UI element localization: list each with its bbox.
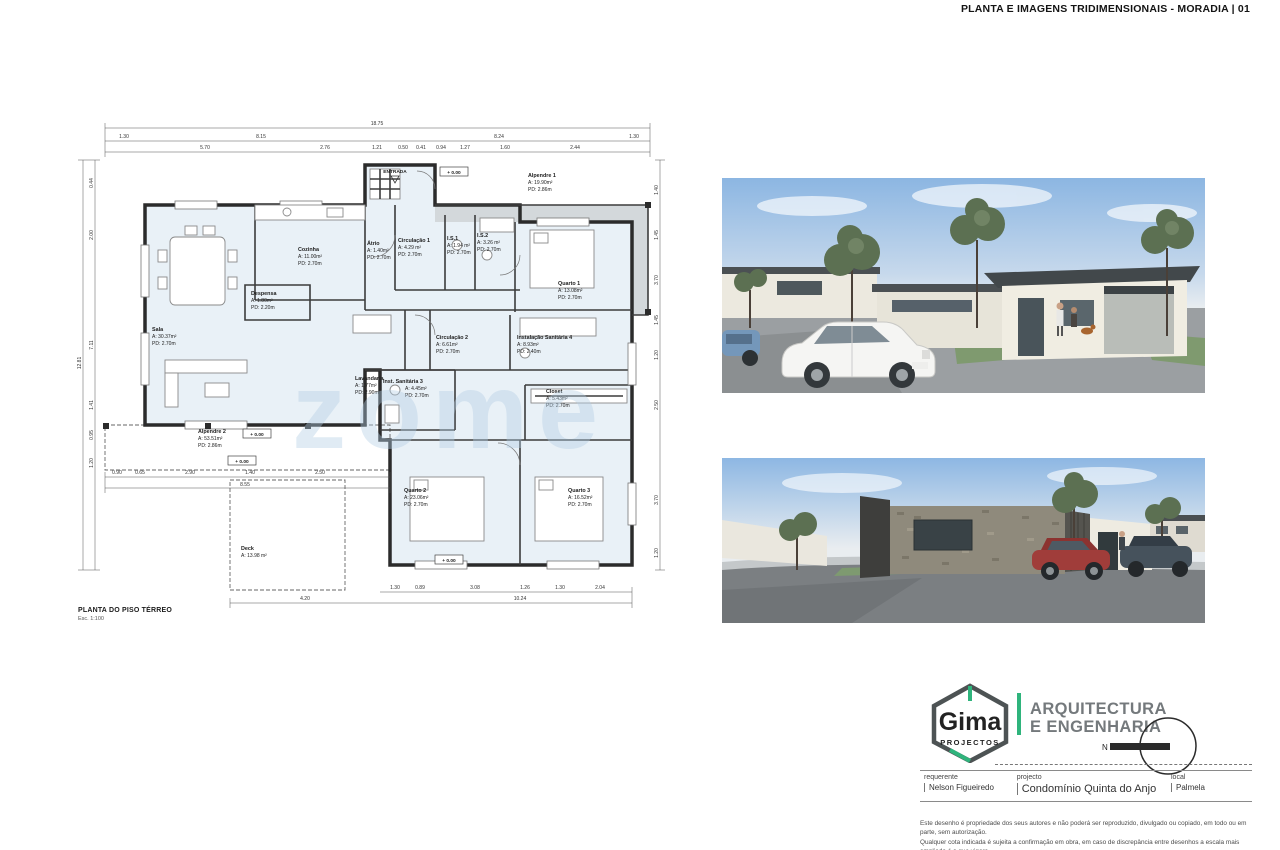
svg-text:PD: 2.70m: PD: 2.70m [367, 255, 391, 261]
svg-text:Inst. Sanitária 3: Inst. Sanitária 3 [383, 379, 423, 385]
room-label-quarto1: Quarto 1A: 13.08m²PD: 2.70m [558, 281, 583, 301]
svg-text:3.70: 3.70 [654, 495, 660, 505]
svg-text:4.20: 4.20 [300, 596, 310, 602]
svg-text:A: 23.06m²: A: 23.06m² [404, 495, 429, 501]
svg-text:1.41: 1.41 [89, 400, 95, 410]
svg-text:2.76: 2.76 [320, 145, 330, 151]
room-label-alpendre1: Alpendre 1A: 19.90m²PD: 2.86m [528, 173, 556, 193]
svg-text:Quarto 3: Quarto 3 [568, 488, 590, 494]
svg-text:PD: 2.70m: PD: 2.70m [298, 261, 322, 267]
svg-text:1.21: 1.21 [372, 145, 382, 151]
svg-text:0.95: 0.95 [89, 430, 95, 440]
north-label: N [1102, 743, 1108, 752]
svg-text:A: 1.94 m²: A: 1.94 m² [447, 243, 470, 249]
svg-text:A: 3.26 m²: A: 3.26 m² [477, 240, 500, 246]
svg-text:+ 0.00: + 0.00 [442, 558, 456, 564]
svg-text:1.60: 1.60 [500, 145, 510, 151]
svg-text:Closet: Closet [546, 389, 563, 395]
logo-wordmark: Gima [939, 708, 1003, 736]
svg-text:Lavandaria: Lavandaria [355, 376, 384, 382]
disclaimer: Este desenho é propriedade dos seus auto… [920, 819, 1252, 850]
svg-text:2.50: 2.50 [315, 470, 325, 476]
svg-text:0.65: 0.65 [135, 470, 145, 476]
svg-text:Sala: Sala [152, 327, 164, 333]
svg-text:PD: 2.70m: PD: 2.70m [447, 250, 471, 256]
svg-text:A: 13.98 m²: A: 13.98 m² [241, 553, 267, 559]
svg-text:PD: 2.70m: PD: 2.70m [477, 247, 501, 253]
svg-text:12.81: 12.81 [77, 357, 83, 370]
disclaimer-line1: Este desenho é propriedade dos seus auto… [920, 819, 1252, 838]
svg-text:Circulação 1: Circulação 1 [398, 238, 430, 244]
svg-text:+ 0.00: + 0.00 [250, 432, 264, 438]
sheet: PLANTA E IMAGENS TRIDIMENSIONAIS - MORAD… [0, 0, 1280, 850]
field-label: local [1171, 774, 1248, 781]
sheet-title: PLANTA E IMAGENS TRIDIMENSIONAIS - MORAD… [900, 3, 1250, 15]
svg-text:Cozinha: Cozinha [298, 247, 320, 253]
svg-text:3.70: 3.70 [654, 275, 660, 285]
field-label: projecto [1017, 774, 1163, 781]
svg-text:2.50: 2.50 [654, 400, 660, 410]
svg-text:Despensa: Despensa [251, 291, 277, 297]
svg-text:A: 6.61m²: A: 6.61m² [436, 342, 458, 348]
svg-text:0.50: 0.50 [398, 145, 408, 151]
svg-text:PD: 2.90m: PD: 2.90m [355, 390, 379, 396]
svg-text:8.55: 8.55 [240, 482, 250, 488]
logo-subtitle: PROJECTOS [940, 738, 1000, 747]
svg-text:0.94: 0.94 [436, 145, 446, 151]
svg-text:1.30: 1.30 [629, 134, 639, 140]
svg-text:1.20: 1.20 [89, 458, 95, 468]
svg-text:Alpendre 1: Alpendre 1 [528, 173, 556, 179]
plan-caption-title: PLANTA DO PISO TÉRREO [78, 607, 172, 614]
svg-text:PD: 2.70m: PD: 2.70m [398, 252, 422, 258]
svg-text:0.44: 0.44 [89, 178, 95, 188]
svg-text:1.40: 1.40 [654, 185, 660, 195]
svg-text:PD: 2.86m: PD: 2.86m [528, 187, 552, 193]
svg-text:8.15: 8.15 [256, 134, 266, 140]
svg-text:PD: 2.40m: PD: 2.40m [517, 349, 541, 355]
svg-text:1.30: 1.30 [390, 585, 400, 591]
svg-text:A: 19.90m²: A: 19.90m² [528, 180, 553, 186]
room-label-cozinha: CozinhaA: 11.00m²PD: 2.70m [298, 247, 322, 267]
svg-text:Instalação Sanitária 4: Instalação Sanitária 4 [517, 335, 572, 341]
svg-text:A: 1.40m²: A: 1.40m² [367, 248, 389, 254]
svg-text:PD: 2.70m: PD: 2.70m [568, 502, 592, 508]
room-label-quarto3: Quarto 3A: 16.52m²PD: 2.70m [568, 488, 593, 508]
room-label-quarto2: Quarto 2A: 23.06m²PD: 2.70m [404, 488, 429, 508]
svg-text:1.20: 1.20 [654, 548, 660, 558]
svg-text:PD: 2.70m: PD: 2.70m [436, 349, 460, 355]
field-label: requerente [924, 774, 1009, 781]
svg-text:Circulação 2: Circulação 2 [436, 335, 468, 341]
person [1119, 531, 1125, 550]
titleblock-field-requerente: requerente Nelson Figueiredo [920, 774, 1013, 795]
svg-text:A: 53.51m²: A: 53.51m² [198, 436, 223, 442]
svg-text:Átrio: Átrio [367, 240, 380, 247]
svg-text:A: 11.00m²: A: 11.00m² [298, 254, 322, 260]
svg-text:ENTRADA: ENTRADA [383, 169, 407, 175]
svg-text:PD: 2.70m: PD: 2.70m [152, 341, 176, 347]
titleblock-table: requerente Nelson Figueiredo projecto Co… [920, 770, 1252, 802]
svg-text:1.45: 1.45 [654, 315, 660, 325]
svg-text:PD: 2.20m: PD: 2.20m [251, 305, 275, 311]
svg-text:A: 16.52m²: A: 16.52m² [568, 495, 593, 501]
svg-text:PD: 2.70m: PD: 2.70m [405, 393, 429, 399]
svg-text:A: 1.80m²: A: 1.80m² [251, 298, 273, 304]
room-label-alpendre2: Alpendre 2A: 53.51m²PD: 2.86m [198, 429, 226, 449]
svg-text:A: 4.29 m²: A: 4.29 m² [398, 245, 421, 251]
titleblock-field-local: local Palmela [1167, 774, 1252, 795]
svg-text:1.40: 1.40 [245, 470, 255, 476]
plan-caption-scale: Esc. 1:100 [78, 616, 104, 622]
svg-text:1.27: 1.27 [460, 145, 470, 151]
room-label-deck: DeckA: 13.98 m² [241, 546, 267, 559]
field-value: Palmela [1171, 783, 1248, 792]
field-value: Nelson Figueiredo [924, 783, 1009, 792]
svg-text:2.90: 2.90 [185, 470, 195, 476]
svg-text:A: 5.43m²: A: 5.43m² [546, 396, 568, 402]
svg-text:1.30: 1.30 [555, 585, 565, 591]
svg-text:2.04: 2.04 [595, 585, 605, 591]
svg-text:18.75: 18.75 [371, 121, 384, 127]
tagline-accent-bar [1017, 693, 1021, 735]
svg-text:I.S.2: I.S.2 [477, 233, 488, 239]
svg-text:1.20: 1.20 [654, 350, 660, 360]
svg-text:Quarto 1: Quarto 1 [558, 281, 580, 287]
titleblock-field-projecto: projecto Condomínio Quinta do Anjo [1013, 774, 1167, 795]
svg-text:+ 0.00: + 0.00 [447, 170, 461, 176]
svg-text:1.45: 1.45 [654, 230, 660, 240]
render-exterior-front [722, 178, 1205, 393]
svg-text:5.70: 5.70 [200, 145, 210, 151]
svg-text:PD: 2.70m: PD: 2.70m [404, 502, 428, 508]
svg-text:PD: 2.70m: PD: 2.70m [546, 403, 570, 409]
svg-text:PD: 2.86m: PD: 2.86m [198, 443, 222, 449]
svg-text:1.26: 1.26 [520, 585, 530, 591]
svg-text:2.44: 2.44 [570, 145, 580, 151]
field-value: Condomínio Quinta do Anjo [1017, 783, 1163, 795]
gima-logo: Gima PROJECTOS [928, 683, 1012, 763]
svg-text:0.89: 0.89 [415, 585, 425, 591]
titleblock-dotted-rule [995, 764, 1252, 765]
svg-text:0.41: 0.41 [416, 145, 426, 151]
svg-text:+ 0.00: + 0.00 [235, 459, 249, 465]
deck-outline [230, 480, 345, 590]
svg-text:8.24: 8.24 [494, 134, 504, 140]
render-exterior-corner [722, 458, 1205, 623]
svg-text:I.S.1: I.S.1 [447, 236, 458, 242]
svg-text:Alpendre 2: Alpendre 2 [198, 429, 226, 435]
svg-text:7.11: 7.11 [89, 340, 95, 350]
svg-text:A: 8.93m²: A: 8.93m² [517, 342, 539, 348]
svg-text:2.00: 2.00 [89, 230, 95, 240]
svg-text:PD: 2.70m: PD: 2.70m [558, 295, 582, 301]
svg-text:A: 4.45m²: A: 4.45m² [405, 386, 427, 392]
svg-text:A: 13.08m²: A: 13.08m² [558, 288, 583, 294]
svg-text:3.08: 3.08 [470, 585, 480, 591]
svg-text:Deck: Deck [241, 546, 254, 552]
svg-text:A: 1.77m²: A: 1.77m² [355, 383, 377, 389]
disclaimer-line2: Qualquer cota indicada é sujeita a confi… [920, 838, 1252, 850]
floor-plan: 18.75 1.30 8.15 8.24 1.30 5.70 2.76 1.21… [55, 105, 675, 635]
svg-text:10.24: 10.24 [514, 596, 527, 602]
svg-text:A: 30.37m²: A: 30.37m² [152, 334, 177, 340]
svg-text:0.90: 0.90 [112, 470, 122, 476]
svg-text:Quarto 2: Quarto 2 [404, 488, 426, 494]
svg-text:1.30: 1.30 [119, 134, 129, 140]
